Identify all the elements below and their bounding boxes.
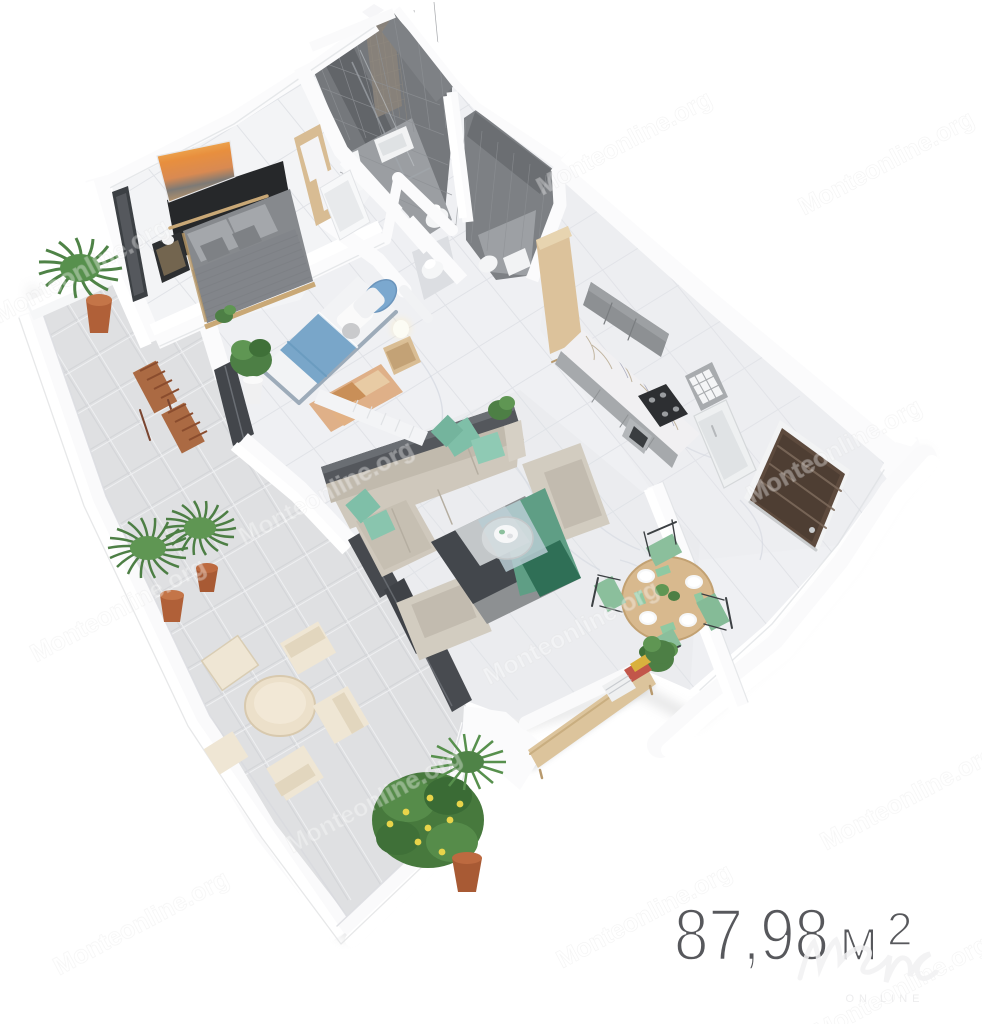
- svg-text:М: М: [840, 919, 878, 970]
- svg-text:2: 2: [887, 903, 913, 955]
- svg-text:ON LINE: ON LINE: [845, 993, 924, 1005]
